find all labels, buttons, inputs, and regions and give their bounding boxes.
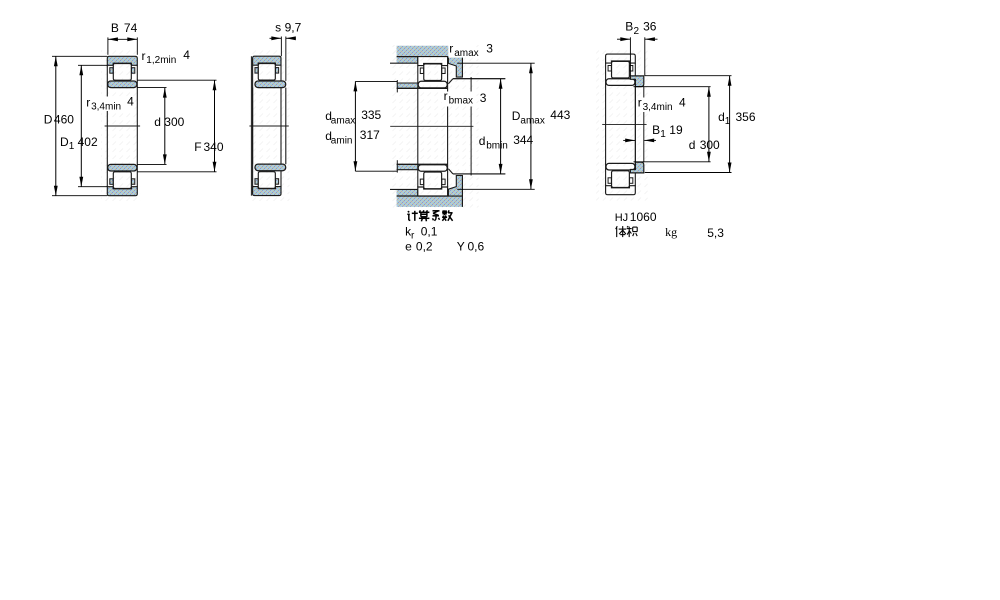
svg-text:1,2min: 1,2min <box>146 55 176 66</box>
svg-text:amin: amin <box>331 135 353 146</box>
svg-text:443: 443 <box>550 108 570 122</box>
svg-text:F: F <box>194 140 201 154</box>
svg-text:amax: amax <box>331 115 355 126</box>
svg-text:460: 460 <box>54 112 74 126</box>
svg-text:3,4min: 3,4min <box>91 102 121 113</box>
svg-text:amax: amax <box>520 116 544 127</box>
svg-text:3: 3 <box>480 91 487 105</box>
svg-text:B: B <box>111 21 119 35</box>
svg-text:d: d <box>689 138 696 152</box>
svg-text:4: 4 <box>679 96 686 110</box>
svg-text:bmin: bmin <box>486 140 508 151</box>
svg-text:r: r <box>449 41 453 55</box>
svg-text:B: B <box>625 20 633 34</box>
svg-text:3,4min: 3,4min <box>643 102 673 113</box>
svg-text:r: r <box>638 96 642 110</box>
svg-text:d: d <box>479 134 486 148</box>
svg-text:e: e <box>405 239 412 253</box>
svg-text:r: r <box>444 89 448 103</box>
svg-text:335: 335 <box>361 108 381 122</box>
svg-text:HJ: HJ <box>615 212 628 224</box>
svg-text:1: 1 <box>660 129 666 140</box>
svg-text:36: 36 <box>643 20 657 34</box>
svg-text:9,7: 9,7 <box>285 21 302 35</box>
svg-text:2: 2 <box>634 26 640 37</box>
svg-text:amax: amax <box>454 48 478 59</box>
svg-text:4: 4 <box>183 48 190 62</box>
svg-text:r: r <box>142 49 146 63</box>
svg-text:300: 300 <box>164 115 184 129</box>
svg-text:19: 19 <box>669 123 683 137</box>
svg-text:356: 356 <box>736 110 756 124</box>
svg-text:d: d <box>154 115 161 129</box>
svg-text:B: B <box>652 123 660 137</box>
svg-text:kg: kg <box>665 225 677 239</box>
svg-text:0,2: 0,2 <box>416 239 433 253</box>
svg-text:D: D <box>60 135 69 149</box>
svg-text:3: 3 <box>486 42 493 56</box>
svg-text:0,1: 0,1 <box>421 224 438 238</box>
svg-text:5,3: 5,3 <box>707 226 724 240</box>
svg-text:s: s <box>275 21 281 35</box>
svg-text:402: 402 <box>78 135 98 149</box>
svg-text:D: D <box>44 112 53 126</box>
svg-text:74: 74 <box>124 21 138 35</box>
svg-text:340: 340 <box>204 140 224 154</box>
svg-text:0,6: 0,6 <box>468 239 485 253</box>
svg-text:1: 1 <box>725 116 731 127</box>
svg-text:Y: Y <box>457 239 465 253</box>
svg-text:4: 4 <box>127 94 134 108</box>
svg-text:300: 300 <box>700 138 720 152</box>
svg-text:bmax: bmax <box>449 95 473 106</box>
svg-text:317: 317 <box>360 128 380 142</box>
svg-text:1060: 1060 <box>630 210 657 224</box>
svg-text:1: 1 <box>69 141 75 152</box>
svg-text:r: r <box>86 95 90 109</box>
